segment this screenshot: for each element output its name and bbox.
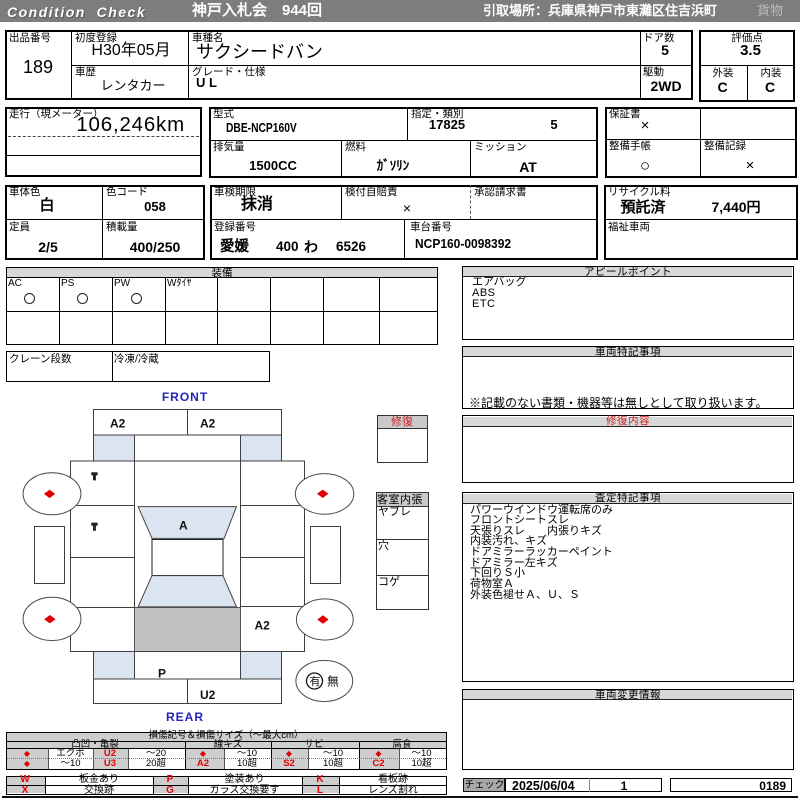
svg-text:有: 有 <box>310 674 321 688</box>
svg-text:A: A <box>179 519 188 533</box>
svg-text:U2: U2 <box>200 688 216 702</box>
svg-text:A2: A2 <box>255 619 271 633</box>
svg-text:無: 無 <box>327 674 339 689</box>
svg-text:A2: A2 <box>200 417 216 431</box>
svg-text:P: P <box>158 667 166 681</box>
svg-text:A2: A2 <box>110 417 126 431</box>
